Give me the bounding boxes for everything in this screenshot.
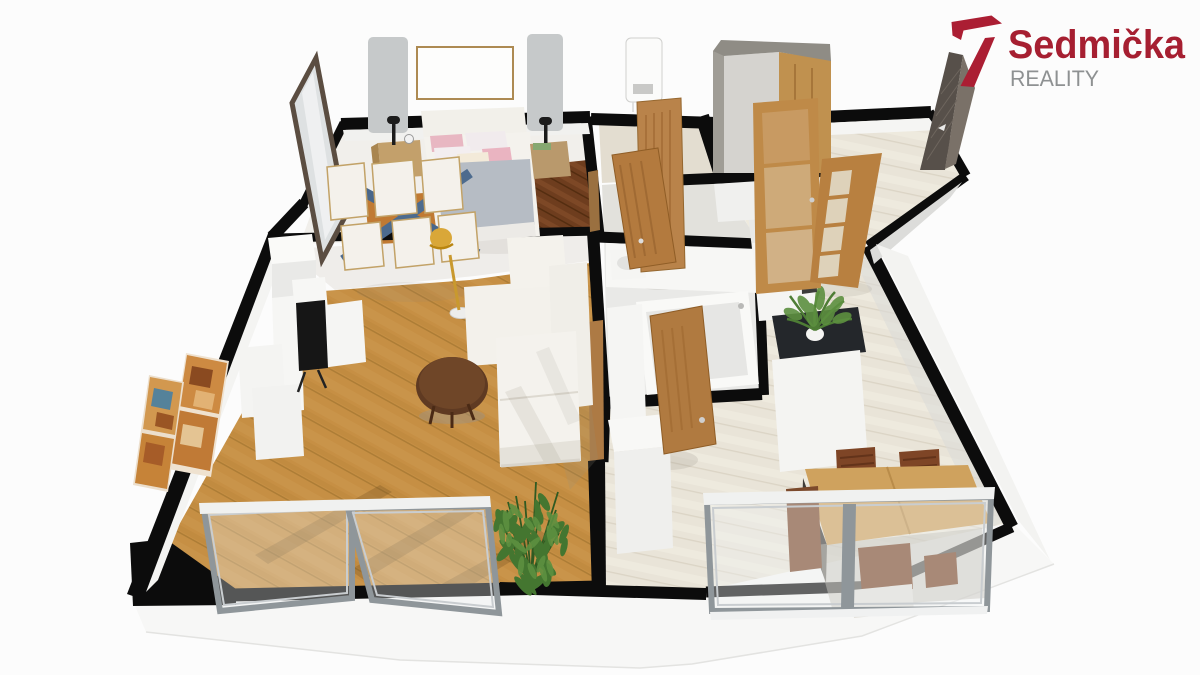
svg-text:Sedmička: Sedmička <box>1008 23 1186 67</box>
svg-text:REALITY: REALITY <box>1010 66 1099 91</box>
